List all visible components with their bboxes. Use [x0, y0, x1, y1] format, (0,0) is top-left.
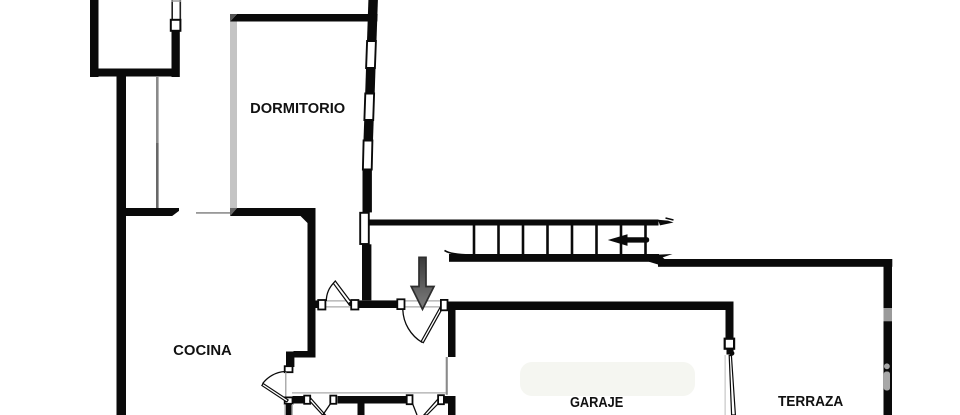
svg-text:DORMITORIO: DORMITORIO	[250, 101, 345, 117]
svg-text:COCINA: COCINA	[173, 343, 232, 359]
svg-text:GARAJE: GARAJE	[570, 395, 624, 411]
svg-text:TERRAZA: TERRAZA	[778, 394, 844, 410]
